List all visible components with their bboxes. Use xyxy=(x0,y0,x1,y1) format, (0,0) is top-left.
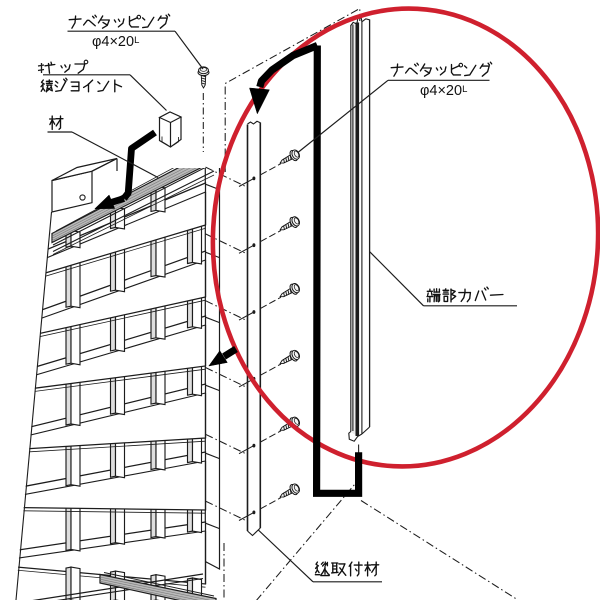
svg-text:φ4×20L: φ4×20L xyxy=(420,83,467,99)
svg-text:φ4×20L: φ4×20L xyxy=(92,34,139,50)
